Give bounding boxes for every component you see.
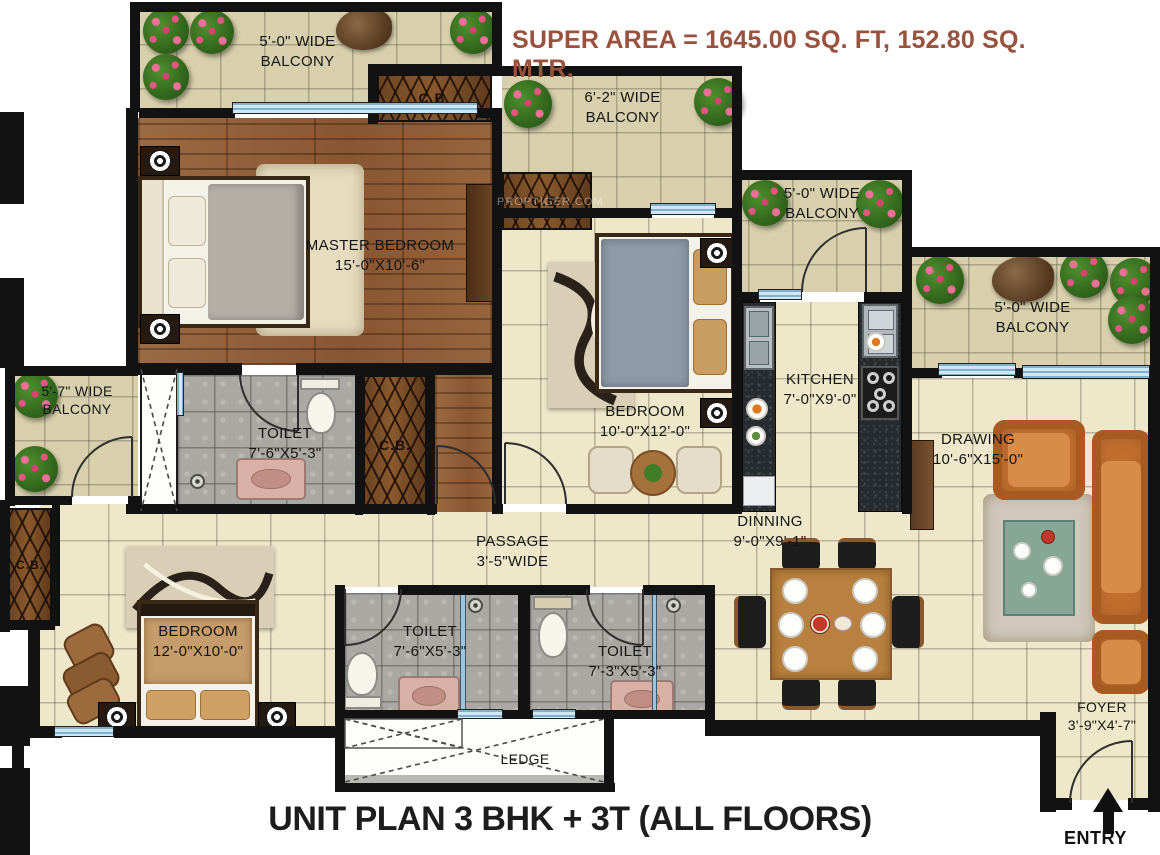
bedroom2-label: BEDROOM10'-0"X12'-0" bbox=[560, 402, 730, 441]
wall bbox=[732, 178, 742, 514]
sofa-seat bbox=[1092, 630, 1150, 694]
balcony-left-label: 5'-7" WIDEBALCONY bbox=[20, 382, 134, 418]
wall bbox=[705, 585, 715, 728]
dining-table bbox=[770, 568, 892, 680]
armchair bbox=[588, 446, 634, 494]
wall bbox=[114, 726, 344, 738]
window bbox=[1022, 365, 1150, 379]
room-dims: 10'-6"X15'-0" bbox=[914, 450, 1042, 470]
wall bbox=[52, 500, 60, 626]
plate bbox=[1021, 582, 1037, 598]
plate bbox=[1013, 542, 1031, 560]
wall bbox=[0, 500, 10, 632]
pillow bbox=[200, 690, 250, 720]
red-dish bbox=[1041, 530, 1055, 544]
adjacent-structure bbox=[0, 686, 30, 746]
room-name: KITCHEN bbox=[786, 371, 854, 388]
floor-plan: C.B. C.B. C.B. C.B. PROPTIGER.COM bbox=[0, 0, 1160, 855]
balcony-word: BALCONY bbox=[752, 204, 892, 224]
balcony-word: BALCONY bbox=[540, 108, 705, 128]
toilet-tank bbox=[344, 696, 382, 709]
serving-bowl bbox=[810, 614, 830, 634]
room-name: TOILET bbox=[598, 643, 652, 660]
wall bbox=[5, 366, 138, 376]
window bbox=[232, 102, 478, 114]
flower-plant bbox=[143, 54, 189, 100]
wall bbox=[296, 363, 502, 375]
dining-chair bbox=[838, 538, 876, 570]
balcony-word: BALCONY bbox=[20, 400, 134, 418]
dining-chair bbox=[838, 678, 876, 710]
pillow bbox=[168, 196, 206, 246]
room-dims: 15'-0"X10'-6" bbox=[280, 256, 480, 276]
pillow bbox=[693, 319, 727, 375]
wall bbox=[5, 366, 15, 506]
plate bbox=[782, 646, 808, 672]
wall bbox=[335, 716, 345, 792]
kitchen-sink bbox=[744, 306, 774, 370]
wall bbox=[492, 208, 652, 218]
window bbox=[758, 289, 802, 300]
nightstand-speaker bbox=[140, 146, 180, 176]
master-bedroom-floor-strip bbox=[435, 373, 492, 514]
cupboard-toilet-side: C.B. bbox=[363, 375, 427, 514]
plate bbox=[778, 612, 804, 638]
wall bbox=[126, 363, 242, 375]
wall bbox=[398, 585, 590, 595]
room-dims: 7'-6"X5'-3" bbox=[350, 642, 510, 662]
food-plate bbox=[746, 426, 766, 446]
wall bbox=[130, 2, 502, 12]
window bbox=[54, 726, 114, 737]
balcony-word: BALCONY bbox=[950, 318, 1115, 338]
food-plate bbox=[866, 332, 886, 352]
room-name: MASTER BEDROOM bbox=[306, 237, 454, 254]
balcony-size: 5'-7" WIDE bbox=[41, 383, 112, 399]
cupboard-top: C.B. bbox=[377, 74, 492, 122]
adjacent-structure bbox=[0, 278, 24, 368]
wall bbox=[335, 585, 345, 720]
room-name: PASSAGE bbox=[476, 533, 549, 550]
ledge-label: LEDGE bbox=[485, 750, 565, 768]
bed-frame-bar bbox=[141, 604, 255, 616]
shower-head bbox=[468, 598, 483, 613]
toilet-tank bbox=[300, 378, 340, 390]
dining-chair bbox=[892, 596, 924, 648]
plate bbox=[852, 646, 878, 672]
wall bbox=[126, 108, 138, 376]
wall bbox=[335, 783, 615, 792]
kitchen-label: KITCHEN7'-0"X9'-0" bbox=[757, 370, 883, 409]
long-sofa bbox=[1092, 430, 1150, 624]
room-dims: 7'-0"X9'-0" bbox=[757, 390, 883, 410]
ledge-floor bbox=[345, 716, 604, 783]
balcony-upper-middle-label: 6'-2" WIDEBALCONY bbox=[540, 88, 705, 127]
balcony-kitchen-side-label: 5'-0" WIDEBALCONY bbox=[752, 184, 892, 223]
wall bbox=[902, 170, 912, 257]
wall bbox=[1128, 798, 1160, 810]
coffee-table bbox=[1003, 520, 1075, 616]
wall bbox=[1040, 798, 1072, 810]
balcony-size: 5'-0" WIDE bbox=[784, 185, 860, 202]
sink-basin bbox=[749, 341, 769, 365]
foyer-label: FOYER3'-9"X4'-7" bbox=[1050, 698, 1154, 734]
room-dims: 10'-0"X12'-0" bbox=[560, 422, 730, 442]
room-name: BEDROOM bbox=[158, 623, 238, 640]
balcony-size: 5'-0" WIDE bbox=[994, 299, 1070, 316]
adjacent-structure bbox=[0, 112, 24, 204]
flower-plant bbox=[12, 446, 58, 492]
wall bbox=[5, 496, 72, 505]
window bbox=[650, 203, 716, 215]
cupboard-left: C.B. bbox=[8, 508, 52, 622]
plate bbox=[852, 578, 878, 604]
super-area-title: SUPER AREA = 1645.00 SQ. FT, 152.80 SQ. … bbox=[512, 26, 1072, 84]
master-bedroom-label: MASTER BEDROOM15'-0"X10'-6" bbox=[280, 236, 480, 275]
nightstand-speaker bbox=[700, 238, 734, 268]
adjacent-structure bbox=[12, 744, 24, 770]
wash-basin bbox=[236, 458, 306, 500]
burner bbox=[883, 372, 895, 384]
plate bbox=[782, 578, 808, 604]
room-dims: 7'-6"X5'-3" bbox=[205, 444, 365, 464]
wall bbox=[130, 2, 140, 112]
wall bbox=[495, 504, 503, 514]
entry-label: ENTRY bbox=[1064, 828, 1154, 849]
room-dims: 9'-0"X9'-1" bbox=[705, 532, 835, 552]
plate bbox=[860, 612, 886, 638]
drawing-label: DRAWING10'-6"X15'-0" bbox=[914, 430, 1042, 469]
flower-plant bbox=[450, 8, 496, 54]
adjacent-structure bbox=[0, 768, 30, 855]
dining-chair bbox=[782, 678, 820, 710]
wall bbox=[902, 247, 1160, 257]
window bbox=[532, 709, 576, 719]
balcony-size: 6'-2" WIDE bbox=[584, 89, 660, 106]
wall bbox=[139, 108, 235, 118]
passage-label: PASSAGE3'-5"WIDE bbox=[430, 532, 595, 571]
room-name: BEDROOM bbox=[605, 403, 685, 420]
wall bbox=[1150, 247, 1160, 378]
room-dims: 7'-3"X5'-3" bbox=[545, 662, 705, 682]
armchair bbox=[676, 446, 722, 494]
round-table bbox=[630, 450, 676, 496]
bedroom3-label: BEDROOM12'-0"X10'-0" bbox=[118, 622, 278, 661]
wall bbox=[427, 375, 435, 515]
flower-plant bbox=[1060, 250, 1108, 298]
toilet3-label: TOILET7'-3"X5'-3" bbox=[545, 642, 705, 681]
plan-title: UNIT PLAN 3 BHK + 3T (ALL FLOORS) bbox=[130, 800, 1010, 839]
wall bbox=[518, 593, 530, 717]
flower-plant bbox=[1108, 296, 1156, 344]
room-name: FOYER bbox=[1077, 699, 1127, 715]
cutting-board bbox=[743, 476, 775, 506]
wall bbox=[902, 247, 912, 514]
dinning-label: DINNING9'-0"X9'-1" bbox=[705, 512, 835, 551]
cupboard-toilet-side-label: C.B. bbox=[379, 437, 411, 453]
pillow bbox=[146, 690, 196, 720]
wall bbox=[492, 108, 502, 514]
room-dims: 3'-9"X4'-7" bbox=[1050, 716, 1154, 734]
balcony-right-label: 5'-0" WIDEBALCONY bbox=[950, 298, 1115, 337]
blanket bbox=[601, 239, 689, 387]
wall bbox=[705, 720, 1053, 736]
toilet2-label: TOILET7'-6"X5'-3" bbox=[350, 622, 510, 661]
pillow bbox=[168, 258, 206, 308]
window bbox=[176, 372, 184, 416]
toilet-tank bbox=[533, 596, 573, 610]
room-name: LEDGE bbox=[501, 751, 550, 767]
bear-rug bbox=[992, 256, 1054, 302]
room-name: DRAWING bbox=[941, 431, 1015, 448]
shaft bbox=[140, 368, 178, 514]
serving-platter bbox=[834, 616, 852, 631]
balcony-word: BALCONY bbox=[205, 52, 390, 72]
flower-plant bbox=[143, 8, 189, 54]
wall bbox=[335, 710, 457, 719]
flower-plant bbox=[916, 256, 964, 304]
balcony-size: 5'-0" WIDE bbox=[259, 33, 335, 50]
wall bbox=[1148, 368, 1160, 812]
room-dims: 3'-5"WIDE bbox=[430, 552, 595, 572]
shower-head bbox=[666, 598, 681, 613]
room-name: DINNING bbox=[737, 513, 802, 530]
headboard bbox=[142, 180, 164, 324]
window bbox=[938, 363, 1016, 376]
cupboard-left-label: C.B. bbox=[16, 558, 44, 572]
bed bbox=[137, 600, 259, 730]
wall bbox=[732, 170, 912, 180]
room-name: TOILET bbox=[403, 623, 457, 640]
sink-basin bbox=[749, 311, 769, 337]
watermark: PROPTIGER.COM bbox=[497, 196, 604, 208]
room-name: TOILET bbox=[258, 425, 312, 442]
appliance-panel bbox=[868, 310, 894, 330]
plate bbox=[1043, 556, 1063, 576]
wall bbox=[604, 716, 614, 792]
wall bbox=[126, 504, 437, 514]
window bbox=[457, 709, 503, 719]
nightstand-speaker bbox=[140, 314, 180, 344]
balcony-top-left-label: 5'-0" WIDEBALCONY bbox=[205, 32, 390, 71]
dining-chair bbox=[734, 596, 766, 648]
shower-head bbox=[190, 474, 205, 489]
burner bbox=[883, 400, 895, 412]
wall bbox=[574, 710, 715, 719]
room-dims: 12'-0"X10'-0" bbox=[118, 642, 278, 662]
toilet-master-label: TOILET7'-6"X5'-3" bbox=[205, 424, 365, 463]
wall bbox=[368, 64, 378, 124]
